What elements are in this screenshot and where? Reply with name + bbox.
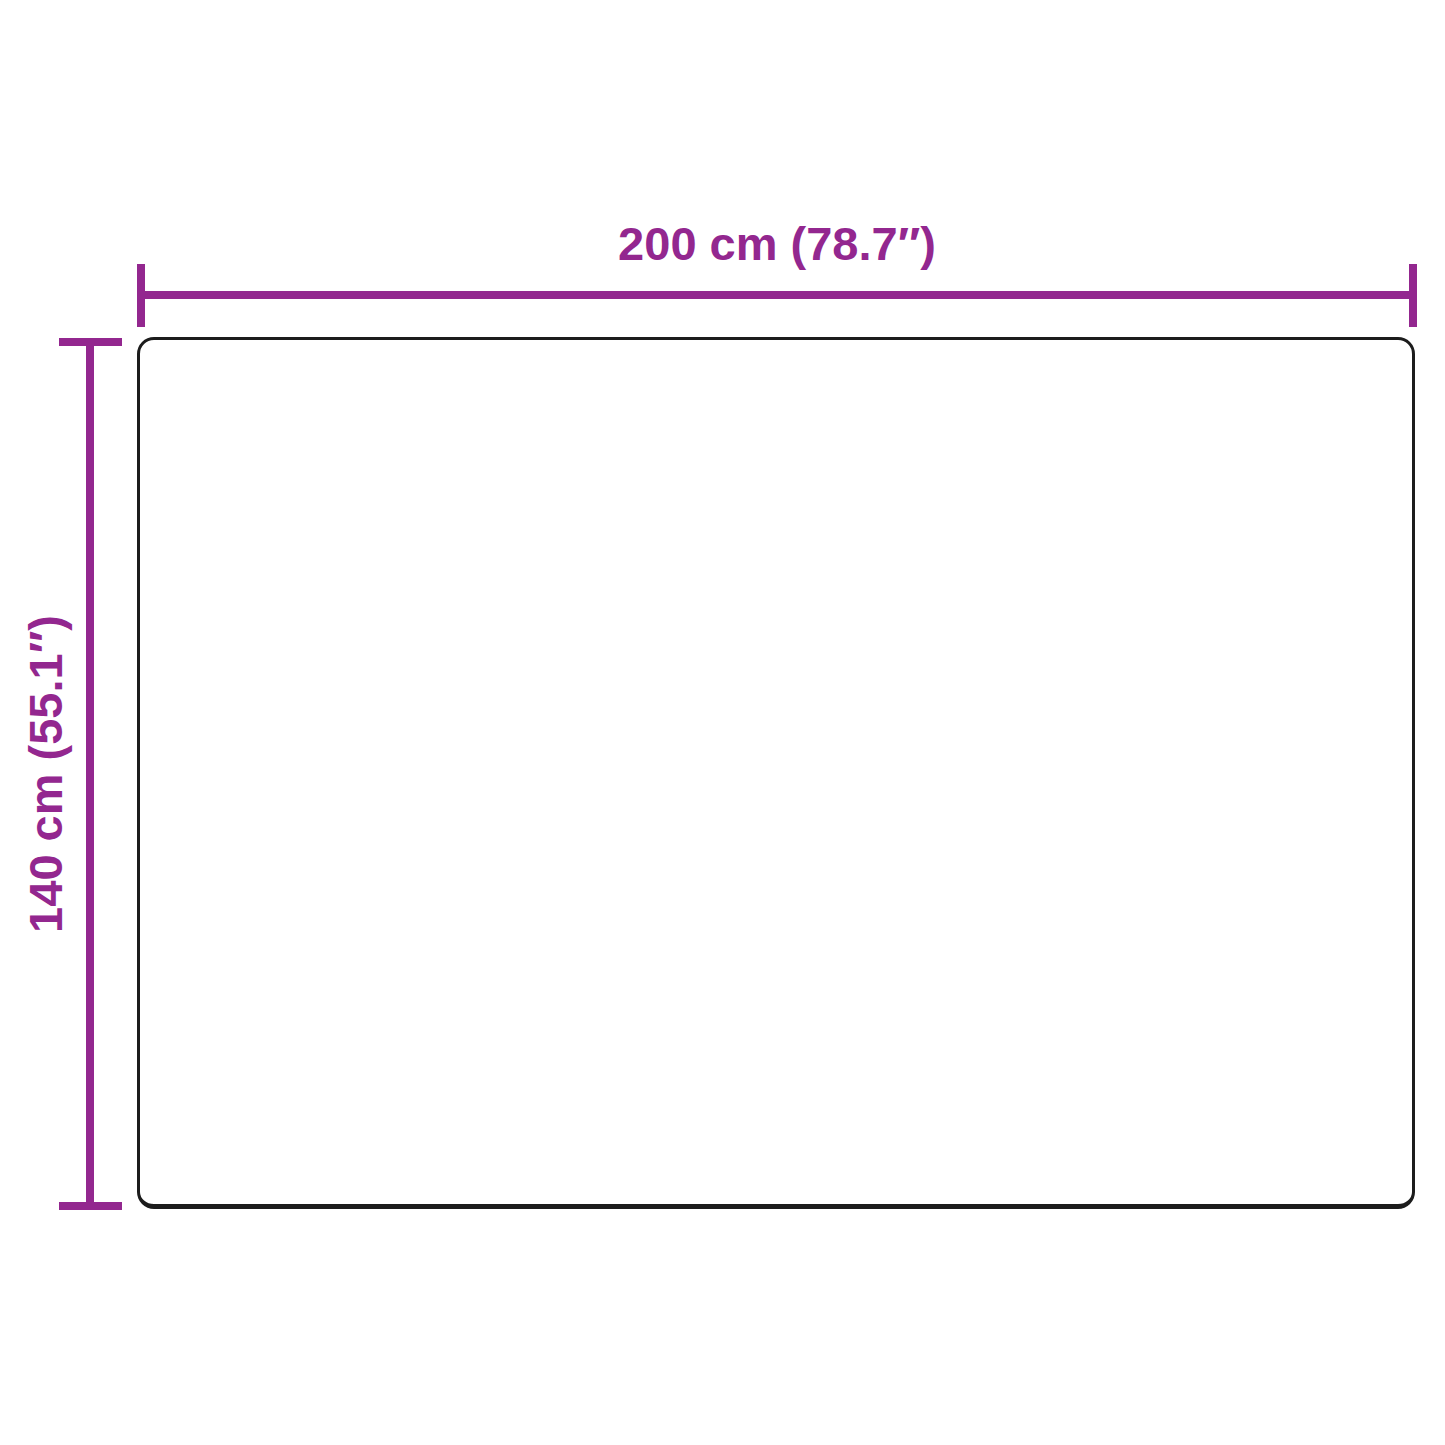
width-dimension-line bbox=[137, 291, 1417, 299]
width-label: 200 cm (78.7″) bbox=[137, 216, 1417, 272]
product-dimension-diagram: 200 cm (78.7″) 140 cm (55.1″) bbox=[0, 0, 1445, 1445]
height-line-cap-bottom bbox=[59, 1202, 122, 1210]
height-line-cap-top bbox=[59, 338, 122, 346]
product-outline bbox=[137, 337, 1415, 1209]
width-line-cap-right bbox=[1409, 264, 1417, 327]
height-label: 140 cm (55.1″) bbox=[18, 615, 74, 933]
height-dimension-line bbox=[86, 338, 94, 1210]
width-line-cap-left bbox=[137, 264, 145, 327]
